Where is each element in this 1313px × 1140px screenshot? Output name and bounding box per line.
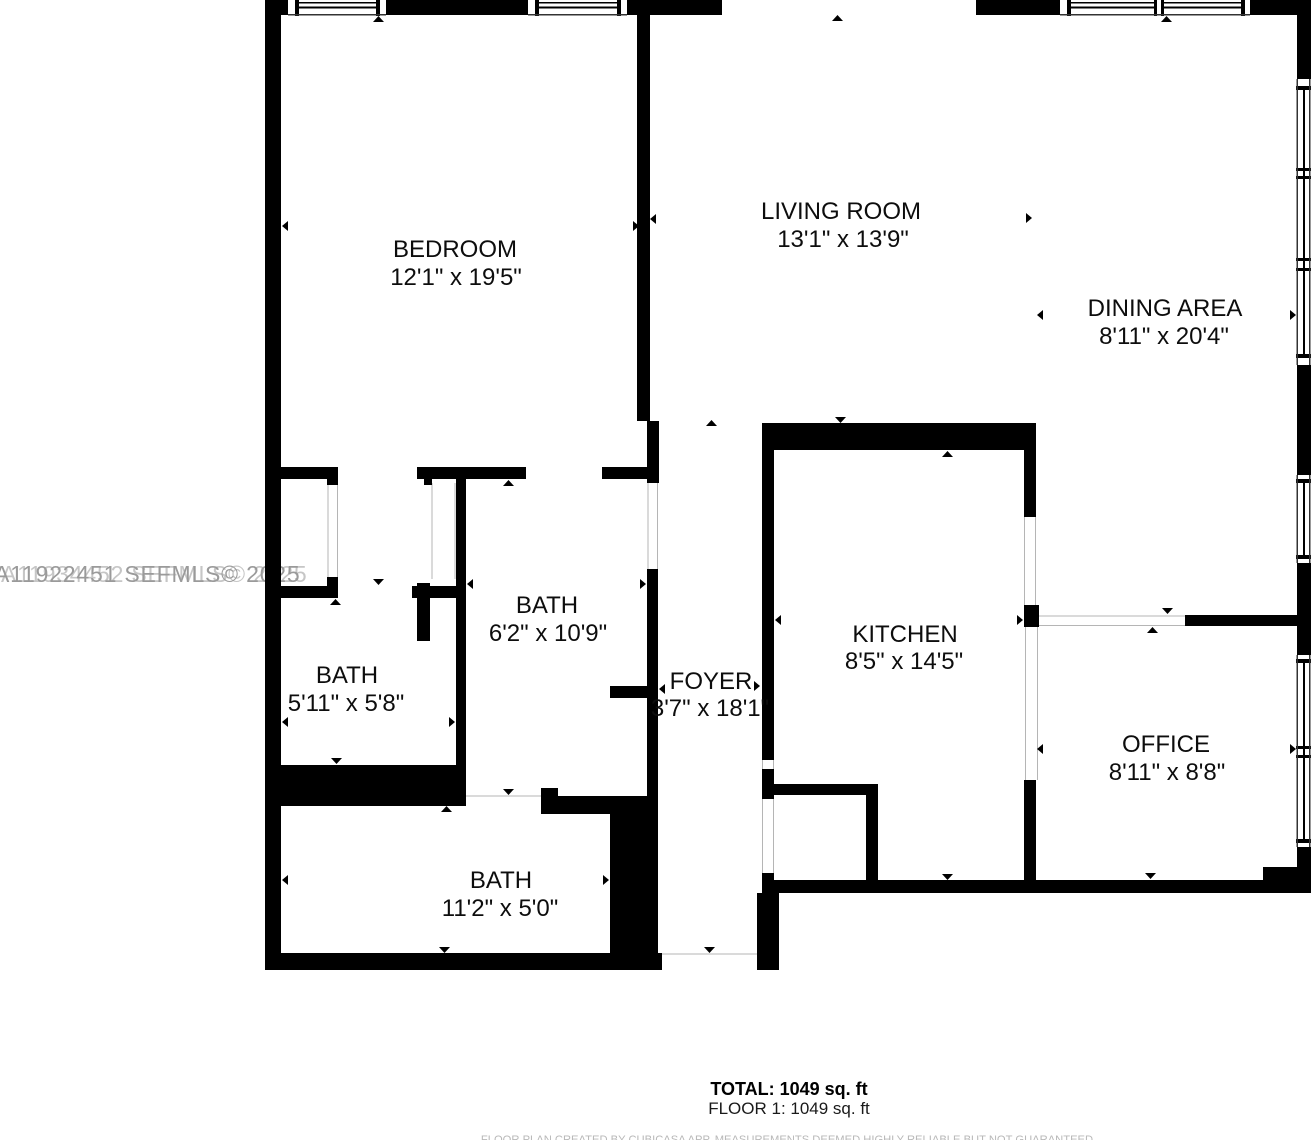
- svg-text:BATH: BATH: [470, 867, 532, 894]
- svg-text:A11922451 SEFMLS© 2025: A11922451 SEFMLS© 2025: [0, 561, 300, 587]
- svg-text:KITCHEN: KITCHEN: [852, 621, 957, 648]
- svg-text:3'7" x 18'1": 3'7" x 18'1": [651, 695, 769, 722]
- svg-text:OFFICE: OFFICE: [1122, 731, 1210, 758]
- svg-text:8'11" x 8'8": 8'11" x 8'8": [1109, 759, 1226, 786]
- svg-text:8'5" x 14'5": 8'5" x 14'5": [845, 648, 963, 675]
- svg-text:TOTAL: 1049 sq. ft: TOTAL: 1049 sq. ft: [710, 1079, 867, 1099]
- svg-text:FLOOR 1: 1049 sq. ft: FLOOR 1: 1049 sq. ft: [708, 1099, 870, 1118]
- svg-text:11'2" x 5'0": 11'2" x 5'0": [442, 895, 559, 922]
- svg-text:BEDROOM: BEDROOM: [393, 236, 517, 263]
- svg-text:BATH: BATH: [516, 592, 578, 619]
- svg-text:FOYER: FOYER: [670, 668, 753, 695]
- svg-text:BATH: BATH: [316, 662, 378, 689]
- svg-text:DINING AREA: DINING AREA: [1088, 295, 1243, 322]
- svg-text:LIVING ROOM: LIVING ROOM: [761, 198, 921, 225]
- svg-text:13'1" x 13'9": 13'1" x 13'9": [777, 226, 909, 253]
- svg-text:6'2" x 10'9": 6'2" x 10'9": [489, 620, 607, 647]
- svg-text:12'1" x 19'5": 12'1" x 19'5": [390, 264, 522, 291]
- svg-text:8'11" x 20'4": 8'11" x 20'4": [1099, 323, 1229, 350]
- svg-text:FLOOR PLAN CREATED BY CUBICASA: FLOOR PLAN CREATED BY CUBICASA APP. MEAS…: [481, 1134, 1093, 1140]
- svg-text:5'11" x 5'8": 5'11" x 5'8": [288, 690, 405, 717]
